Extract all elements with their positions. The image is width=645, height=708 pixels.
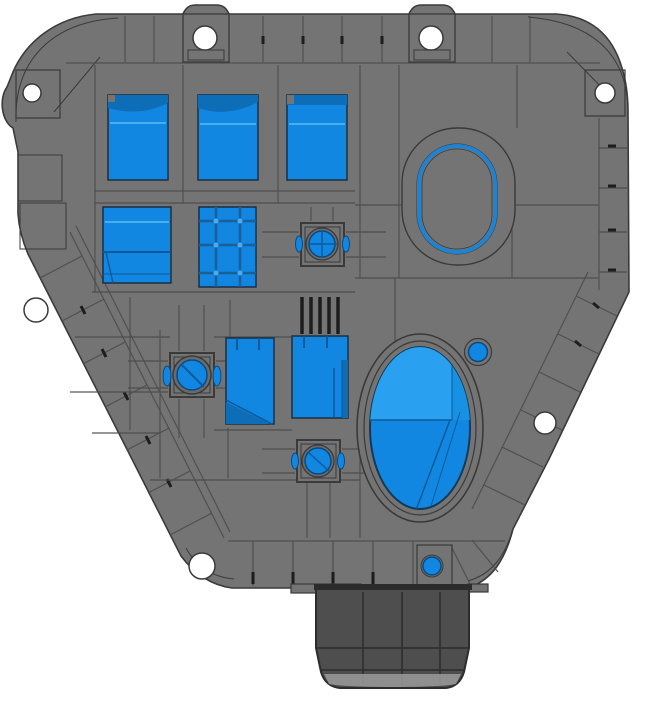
mounting-hole [534, 412, 556, 434]
mounting-hole [595, 83, 615, 103]
mounting-hole [24, 298, 48, 322]
part-body [2, 5, 629, 588]
blue-hole-upper [465, 339, 492, 366]
blue-hole-lower [421, 555, 443, 577]
cutout-window-1 [108, 95, 168, 180]
mounting-hole [23, 84, 41, 102]
screw-boss-top [296, 223, 350, 266]
cutout-window-2 [198, 95, 258, 180]
cutout-window-4 [103, 207, 171, 283]
oval-recess-blue-ring [419, 146, 495, 252]
bottom-cylinder [291, 584, 488, 688]
cad-viewport [0, 0, 645, 708]
screw-boss-bottom [292, 440, 345, 482]
mounting-hole [193, 26, 217, 50]
cylinder-bottom-rim [324, 674, 461, 687]
mounting-hole [419, 26, 443, 50]
cutout-window-7 [292, 336, 348, 418]
oval-recess [402, 128, 515, 265]
cad-render [0, 0, 645, 708]
mounting-hole [189, 553, 215, 579]
cutout-window-3 [287, 95, 347, 180]
cutout-window-grid [199, 207, 256, 287]
screw-boss-left [163, 353, 221, 397]
large-oval-opening [357, 334, 483, 522]
cutout-window-6 [226, 338, 274, 424]
